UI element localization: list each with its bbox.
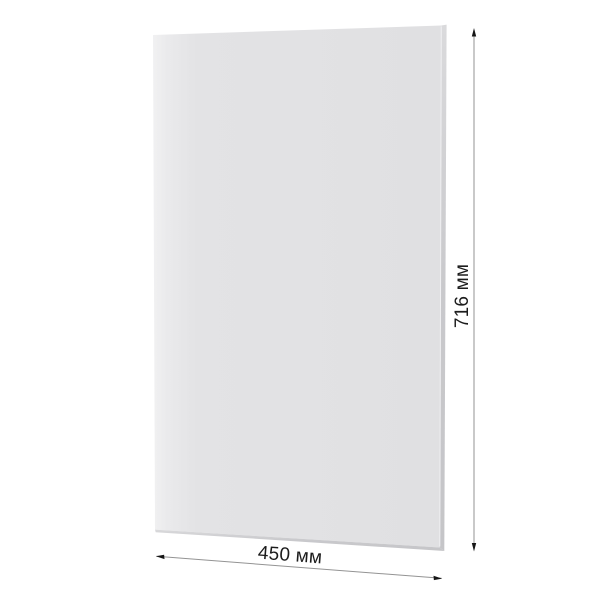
height-arrow-bottom-icon <box>472 543 476 552</box>
product-dimension-drawing: 716 мм 450 мм <box>0 0 600 600</box>
panel-face <box>153 26 441 548</box>
height-arrow-top-icon <box>472 28 476 37</box>
panel-drawing-svg <box>0 0 600 600</box>
height-dimension-label: 716 мм <box>452 261 474 331</box>
width-arrow-left-icon <box>156 555 165 559</box>
